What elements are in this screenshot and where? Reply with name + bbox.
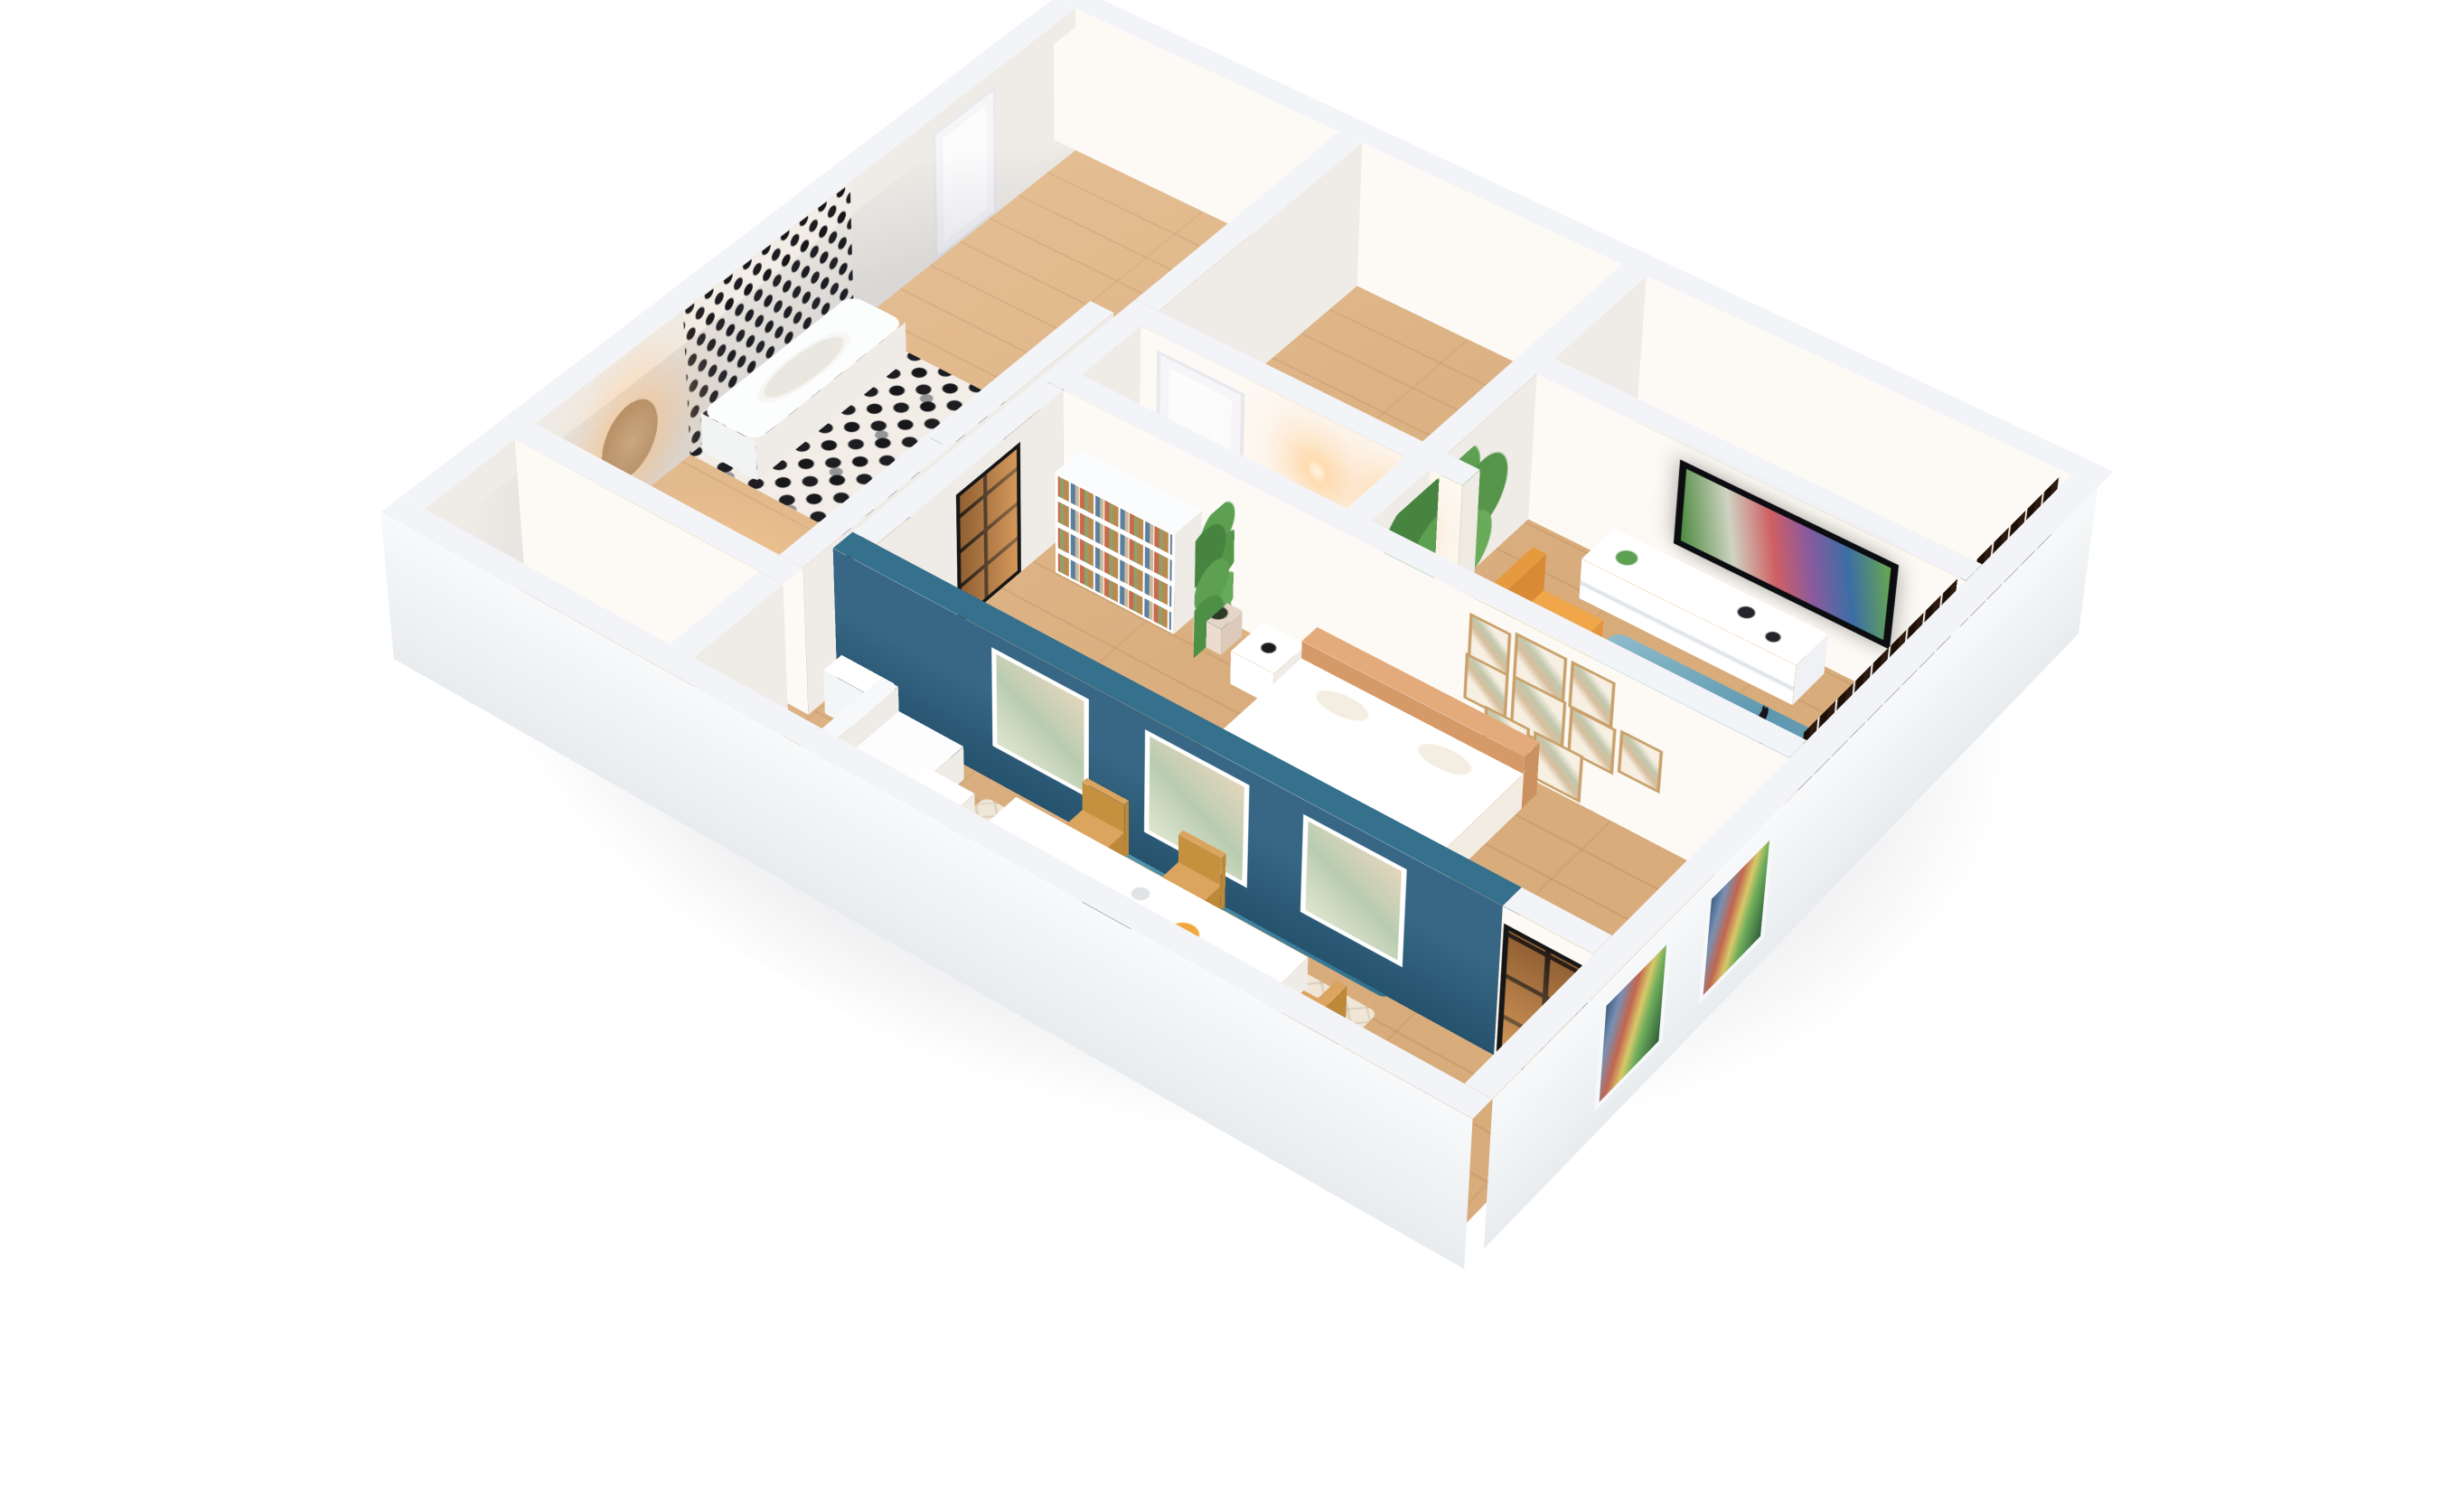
gallery-frame-7 bbox=[1618, 729, 1663, 794]
render-canvas bbox=[0, 0, 2440, 1512]
apartment-floor bbox=[394, 127, 2094, 1269]
wall-sconce-1 bbox=[1309, 455, 1326, 484]
